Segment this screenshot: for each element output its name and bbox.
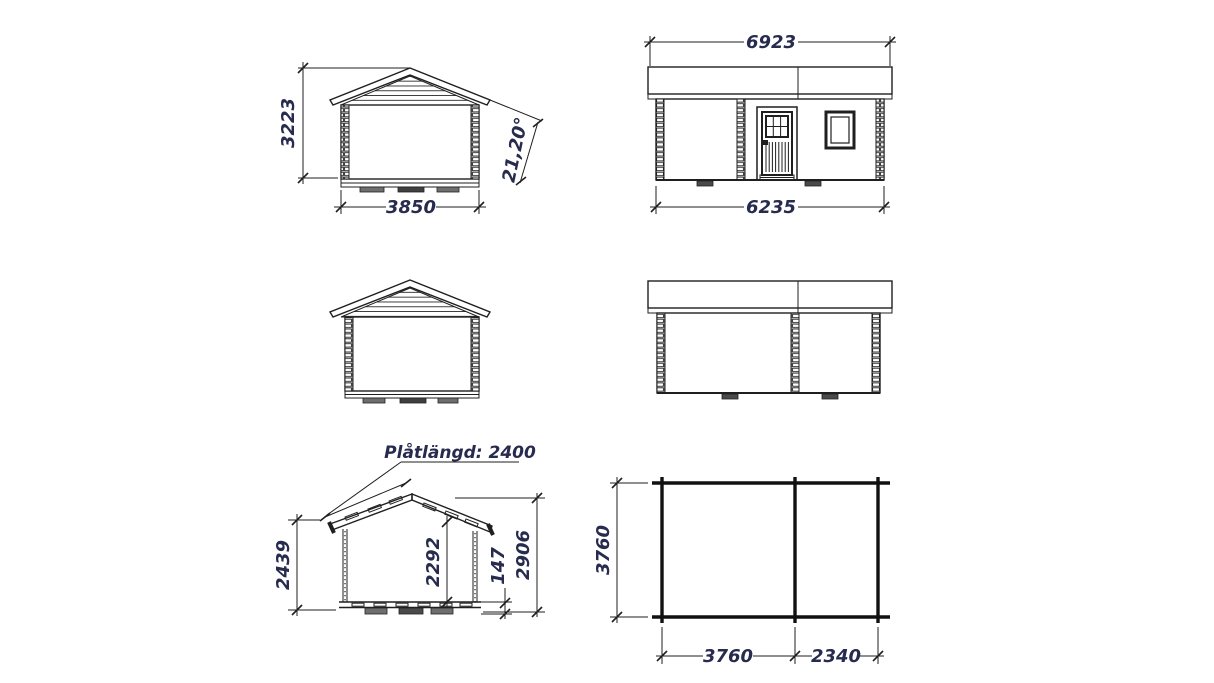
foundation-blocks: [363, 398, 458, 403]
dim-interior-height: 2292: [423, 516, 452, 607]
entry-door: [757, 107, 797, 180]
foundation-blocks: [365, 608, 453, 614]
section-wall-left: [343, 529, 347, 602]
rear-wall: [345, 317, 479, 391]
front-gable-elevation: 3223 3850 21,20°: [278, 50, 543, 218]
wall-length-value: 6235: [746, 197, 796, 218]
roof-length-value: 6923: [746, 32, 796, 53]
partition-log-joint: [791, 313, 799, 393]
corner-log-joint-left: [656, 99, 664, 180]
cross-section: Plåtlängd: 2400: [273, 442, 545, 619]
corner-log-joint-right: [876, 99, 884, 180]
roof-edge-board: [648, 94, 892, 99]
plate-length-callout: Plåtlängd: 2400: [327, 442, 536, 515]
corner-log-joint-right: [471, 317, 479, 391]
dim-floor-height: 147: [481, 546, 513, 619]
corner-log-joint-left: [341, 105, 349, 179]
interior-height-value: 2292: [423, 537, 444, 587]
room-b-width-value: 2340: [811, 646, 861, 667]
section-floor: [339, 602, 481, 608]
corner-log-joint-left: [345, 317, 353, 391]
dim-plan-widths: 3760 2340: [656, 627, 884, 667]
dim-gable-width: 3850: [334, 190, 486, 218]
corner-log-joint-right: [471, 105, 479, 179]
foundation-blocks: [360, 187, 459, 192]
drawing-canvas: 3223 3850 21,20°: [0, 0, 1214, 683]
roof-fascia-hatched: [648, 281, 892, 308]
total-height-value: 2906: [513, 530, 534, 580]
roof-angle-value: 21,20°: [498, 115, 532, 184]
window: [826, 112, 854, 148]
corner-log-joint-left: [657, 313, 665, 393]
gable-width-value: 3850: [386, 197, 436, 218]
gable-siding: [300, 262, 480, 318]
side-elevation-rear: [648, 281, 892, 399]
room-a-width-value: 3760: [703, 646, 753, 667]
dim-roof-angle: 21,20°: [490, 100, 543, 185]
foundation-blocks: [722, 394, 838, 399]
foundation-blocks: [697, 181, 821, 186]
dim-wall-height: 2439: [273, 514, 336, 616]
corner-log-joint-right: [872, 313, 880, 393]
partition-log-joint: [737, 99, 745, 180]
dim-wall-length: 6235: [650, 186, 890, 218]
roof-edge-board: [648, 308, 892, 313]
dim-plan-depth: 3760: [593, 477, 648, 623]
gable-height-value: 3223: [278, 98, 299, 148]
technical-drawing: 3223 3850 21,20°: [0, 0, 1214, 683]
floor-height-value: 147: [488, 547, 509, 585]
floor-plan: 3760 3760 2340: [593, 477, 890, 667]
section-wall-right: [473, 531, 477, 602]
rear-gable-elevation: [300, 262, 490, 403]
plate-length-label: Plåtlängd: 2400: [384, 442, 536, 463]
dim-roof-length: 6923: [644, 32, 896, 66]
front-wall: [341, 105, 479, 179]
eave-fascia-left: [329, 522, 334, 533]
plan-depth-value: 3760: [593, 525, 614, 575]
roof-fascia-hatched: [648, 67, 892, 94]
wall-height-value: 2439: [273, 540, 294, 590]
gable-siding: [300, 50, 480, 106]
side-elevation-front: 6923: [644, 32, 896, 218]
rear-side-wall: [657, 313, 880, 393]
